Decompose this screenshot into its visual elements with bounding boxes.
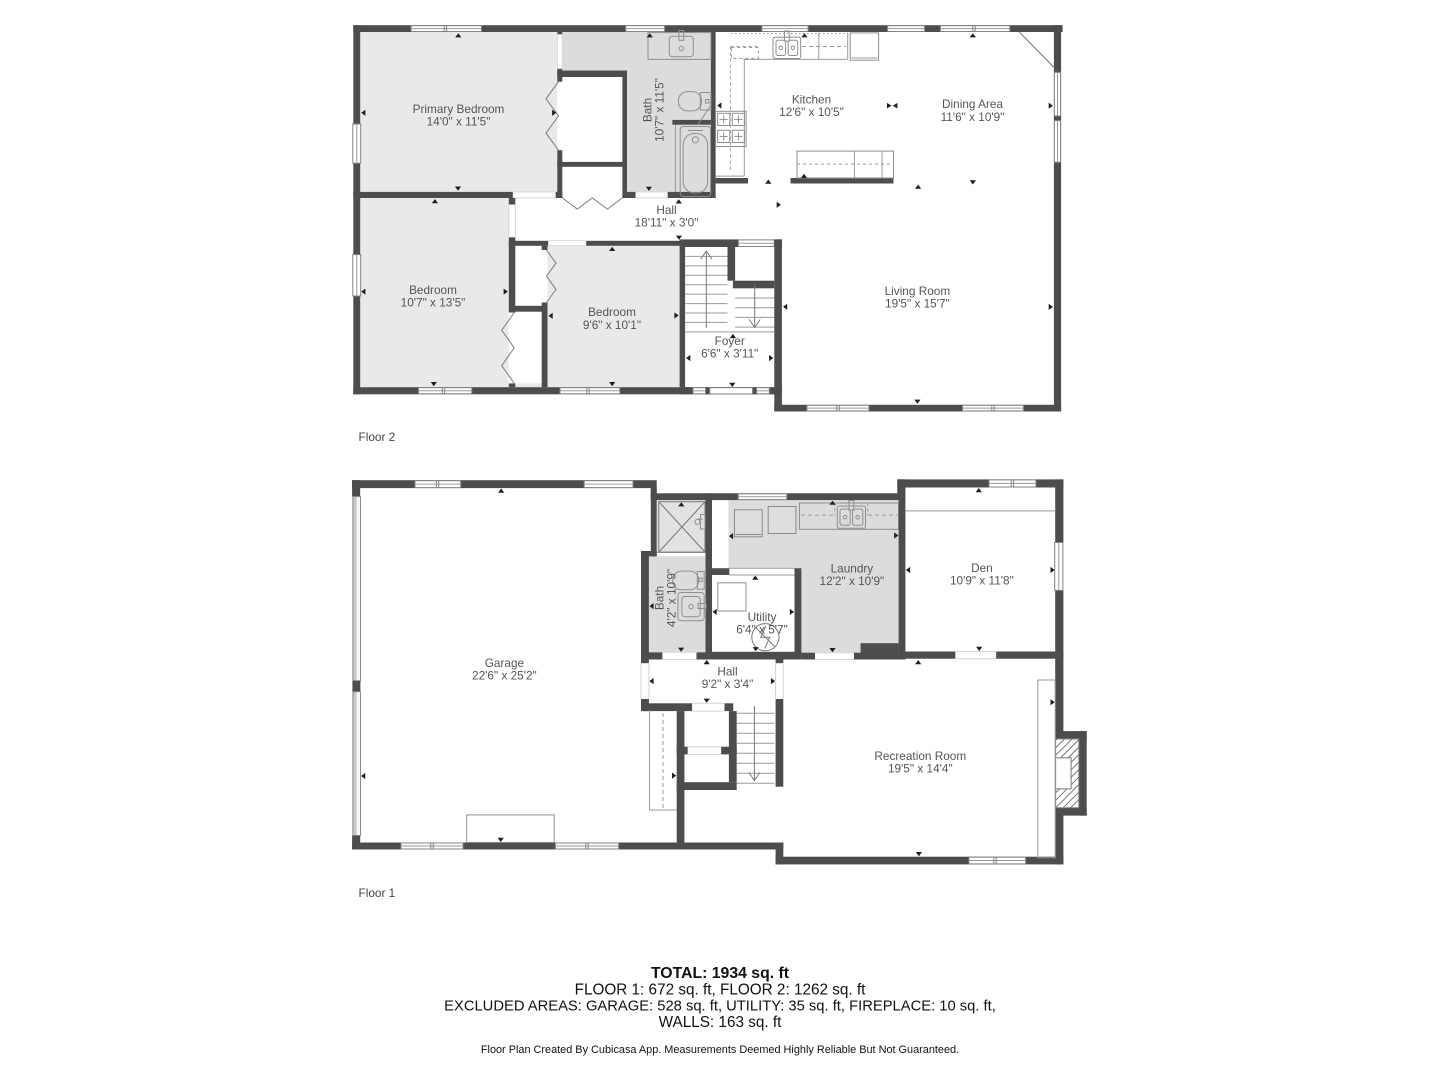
svg-text:11'6" x 10'9": 11'6" x 10'9" (941, 110, 1005, 124)
svg-text:10'7" x 11'5": 10'7" x 11'5" (653, 78, 667, 142)
svg-text:19'5" x 15'7": 19'5" x 15'7" (885, 296, 950, 310)
svg-text:10'9" x 11'8": 10'9" x 11'8" (950, 573, 1014, 587)
svg-text:WALLS: 163 sq. ft: WALLS: 163 sq. ft (659, 1014, 782, 1031)
svg-text:TOTAL: 1934 sq. ft: TOTAL: 1934 sq. ft (651, 965, 790, 982)
svg-text:22'6" x 25'2": 22'6" x 25'2" (472, 669, 537, 683)
svg-text:14'0" x 11'5": 14'0" x 11'5" (427, 115, 491, 129)
svg-text:19'5" x 14'4": 19'5" x 14'4" (888, 761, 953, 775)
svg-text:9'2" x 3'4": 9'2" x 3'4" (702, 677, 754, 691)
svg-text:18'11" x 3'0": 18'11" x 3'0" (635, 215, 699, 229)
svg-text:4'2" x 10'9": 4'2" x 10'9" (665, 569, 679, 627)
svg-text:Floor 2: Floor 2 (359, 430, 396, 444)
svg-text:9'6" x 10'1": 9'6" x 10'1" (583, 318, 641, 332)
svg-text:EXCLUDED AREAS: GARAGE: 528 sq: EXCLUDED AREAS: GARAGE: 528 sq. ft, UTIL… (444, 999, 996, 1015)
svg-text:10'7" x 13'5": 10'7" x 13'5" (401, 295, 466, 309)
svg-text:12'6" x 10'5": 12'6" x 10'5" (779, 105, 844, 119)
svg-text:Floor Plan Created By Cubicasa: Floor Plan Created By Cubicasa App. Meas… (481, 1044, 959, 1056)
svg-text:6'4" x 5'7": 6'4" x 5'7" (736, 623, 788, 637)
svg-text:6'6" x 3'11": 6'6" x 3'11" (701, 347, 758, 361)
svg-text:12'2" x 10'9": 12'2" x 10'9" (820, 574, 885, 588)
svg-text:FLOOR 1: 672 sq. ft, FLOOR 2:: FLOOR 1: 672 sq. ft, FLOOR 2: 1262 sq. f… (575, 981, 867, 998)
svg-text:Floor 1: Floor 1 (359, 886, 396, 900)
